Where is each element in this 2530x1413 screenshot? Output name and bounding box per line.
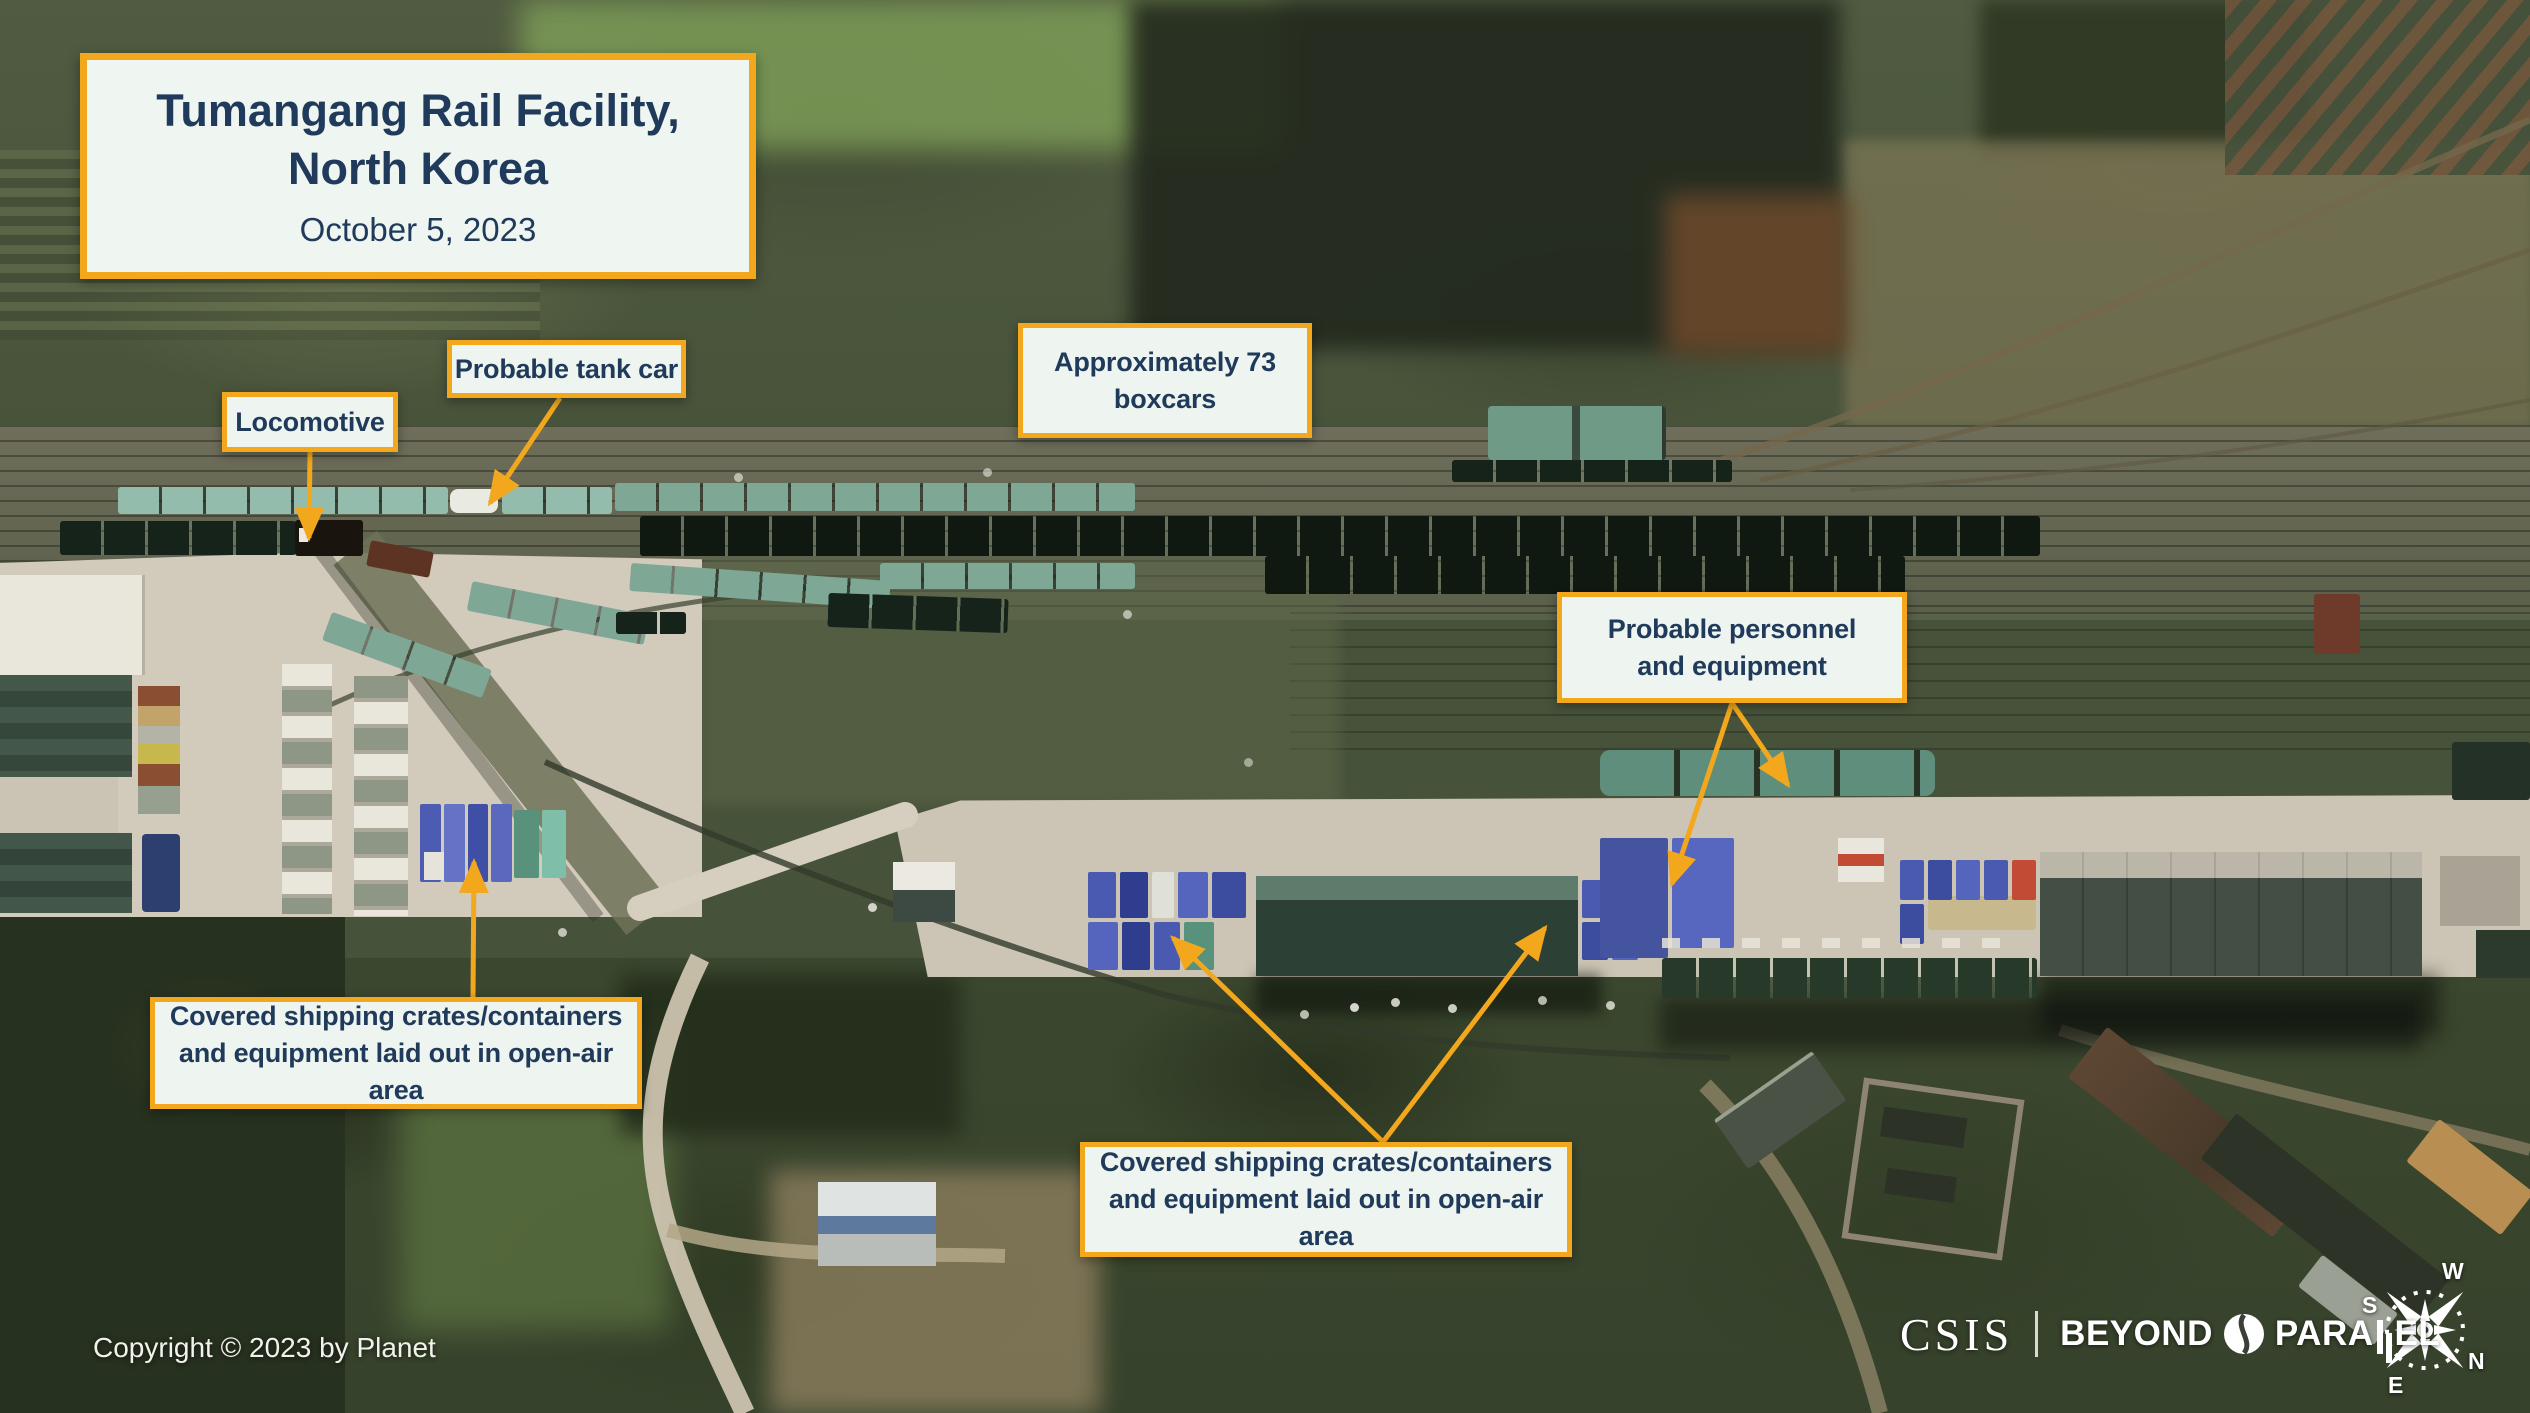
white-crate xyxy=(424,852,444,880)
dirt-area xyxy=(1845,140,2530,430)
blue-truck xyxy=(142,834,180,912)
label-boxcars-line2: boxcars xyxy=(1114,381,1216,418)
building-shadow xyxy=(1256,974,1601,1014)
csis-beyond-parallel-logo: CSIS BEYOND PARA EL xyxy=(1900,1306,2440,1362)
csis-wordmark: CSIS xyxy=(1900,1308,2013,1361)
title-card: Tumangang Rail Facility, North Korea Oct… xyxy=(80,53,756,279)
parallel-text: PARA EL xyxy=(2275,1314,2440,1354)
parallel-para: PARA xyxy=(2275,1314,2374,1354)
label-tank-car-text: Probable tank car xyxy=(455,351,678,388)
train-consist-teal xyxy=(615,483,1135,511)
white-objects-row xyxy=(1662,938,2022,948)
dark-train-row xyxy=(60,521,296,555)
label-crates-center-line1: Covered shipping crates/containers xyxy=(1100,1144,1552,1181)
green-train-row xyxy=(1662,958,2037,998)
dark-cars-row xyxy=(1452,460,1732,482)
train-consist-teal xyxy=(502,487,612,514)
label-personnel-line2: and equipment xyxy=(1637,648,1826,685)
label-crates-left-line1: Covered shipping crates/containers xyxy=(170,998,622,1035)
logo-divider xyxy=(2035,1311,2038,1357)
walled-compound xyxy=(1842,1078,2025,1261)
train-consist-teal xyxy=(118,487,448,514)
boxcar-train xyxy=(640,516,2040,556)
ground-specks xyxy=(0,0,5,5)
stacked-containers xyxy=(138,686,180,814)
beyond-parallel-globe-icon xyxy=(2223,1313,2265,1355)
title-line1: Tumangang Rail Facility, xyxy=(156,82,679,140)
platform-shadow xyxy=(1660,998,2420,1050)
dark-cars xyxy=(2476,930,2530,978)
white-blue-building xyxy=(818,1182,936,1266)
beyond-text: BEYOND xyxy=(2060,1314,2213,1354)
label-crates-left: Covered shipping crates/containers and e… xyxy=(150,997,642,1109)
teal-roof-building xyxy=(0,675,132,777)
probable-tank-car xyxy=(450,489,498,513)
white-roof-building xyxy=(0,575,145,675)
parallel-bar-icon xyxy=(2386,1333,2392,1363)
container-grid-column xyxy=(282,664,332,914)
red-boxcar xyxy=(2314,594,2360,654)
tree-cluster xyxy=(620,975,960,1135)
parallel-el: EL xyxy=(2395,1314,2441,1354)
container-grid-column xyxy=(354,676,408,916)
label-personnel: Probable personnel and equipment xyxy=(1557,592,1907,703)
title-line2: North Korea xyxy=(288,140,548,198)
teal-covered-crates xyxy=(514,810,566,878)
teal-roof-warehouse xyxy=(1256,876,1578,976)
dark-cars xyxy=(2452,742,2530,800)
title-date: October 5, 2023 xyxy=(300,210,537,250)
parallel-bar-icon xyxy=(2377,1320,2383,1354)
gray-structure xyxy=(2440,856,2520,926)
teal-roof-building xyxy=(0,833,132,913)
label-boxcars: Approximately 73 boxcars xyxy=(1018,323,1312,438)
compass-s: S xyxy=(2362,1292,2377,1319)
large-warehouse xyxy=(2040,852,2422,976)
tank-car-rake xyxy=(1600,750,1935,796)
beyond-parallel-wordmark: BEYOND PARA EL xyxy=(2060,1313,2440,1355)
label-tank-car: Probable tank car xyxy=(447,340,686,398)
small-blue-containers xyxy=(1900,860,2050,950)
satellite-annotation-figure: Tumangang Rail Facility, North Korea Oct… xyxy=(0,0,2530,1413)
gray-building-section xyxy=(0,777,118,833)
compass-n: N xyxy=(2468,1348,2485,1375)
label-locomotive-text: Locomotive xyxy=(235,404,385,441)
compass-w: W xyxy=(2442,1258,2464,1285)
white-shed xyxy=(893,862,955,922)
label-crates-center: Covered shipping crates/containers and e… xyxy=(1080,1142,1572,1257)
farm-rows xyxy=(2225,0,2530,175)
label-crates-center-line2: and equipment laid out in open-air area xyxy=(1085,1181,1567,1255)
label-crates-left-line2: and equipment laid out in open-air area xyxy=(155,1035,637,1109)
label-locomotive: Locomotive xyxy=(222,392,398,452)
label-boxcars-line1: Approximately 73 xyxy=(1054,344,1276,381)
siding-cars xyxy=(827,593,1008,633)
label-personnel-line1: Probable personnel xyxy=(1608,611,1856,648)
brown-smoke-patch xyxy=(1665,195,1850,355)
siding-cars xyxy=(616,612,686,634)
curved-train-segment xyxy=(880,563,1135,589)
locomotive-vehicle xyxy=(295,520,363,556)
white-red-truck xyxy=(1838,838,1884,882)
copyright-text: Copyright © 2023 by Planet xyxy=(93,1332,436,1364)
compass-e: E xyxy=(2388,1372,2403,1399)
blue-container-cluster xyxy=(1088,872,1253,976)
dark-train-row xyxy=(1265,556,1905,594)
teal-boxcar-pair xyxy=(1488,406,1666,460)
